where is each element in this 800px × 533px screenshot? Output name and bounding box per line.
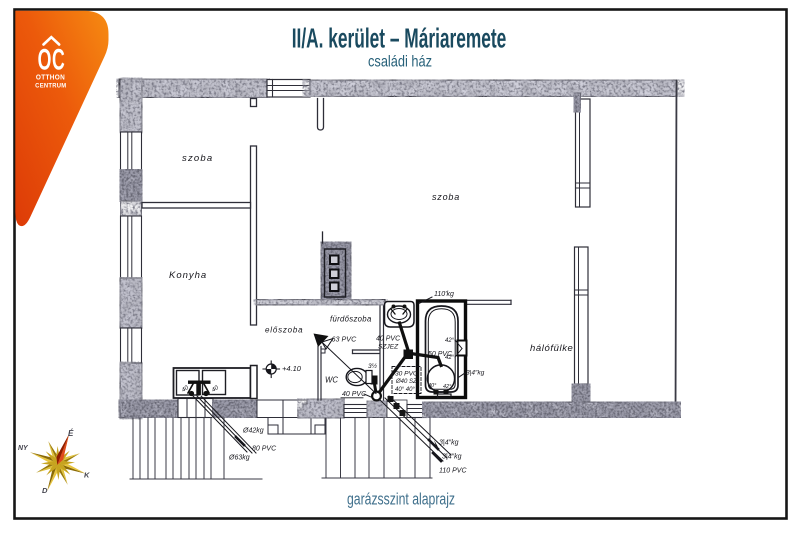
svg-text:fürdőszoba: fürdőszoba	[330, 315, 372, 324]
svg-text:42°: 42°	[445, 355, 455, 361]
svg-text:3½: 3½	[368, 362, 378, 370]
svg-text:WC: WC	[325, 376, 338, 385]
svg-text:NY: NY	[18, 445, 29, 452]
svg-text:3|4″kg: 3|4″kg	[466, 370, 485, 377]
svg-text:+4.10: +4.10	[282, 364, 302, 373]
svg-text:SZJEZ: SZJEZ	[378, 344, 399, 351]
svg-text:42°: 42°	[445, 338, 455, 344]
svg-text:110′kg: 110′kg	[434, 291, 454, 298]
svg-text:40 PVC: 40 PVC	[376, 336, 401, 343]
svg-text:szoba: szoba	[432, 192, 460, 202]
svg-text:40 PVC: 40 PVC	[342, 391, 367, 398]
svg-text:Ø40 SZ: Ø40 SZ	[395, 379, 417, 385]
svg-text:OC: OC	[38, 44, 66, 77]
svg-text:80 PVC: 80 PVC	[252, 446, 277, 453]
svg-text:3|4″kg: 3|4″kg	[442, 454, 462, 461]
svg-text:40°: 40°	[428, 383, 437, 389]
svg-text:szoba: szoba	[182, 153, 213, 164]
svg-text:OTTHON: OTTHON	[36, 74, 65, 81]
svg-text:É: É	[68, 429, 74, 438]
svg-text:Ø63kg: Ø63kg	[228, 455, 250, 462]
svg-text:3|4″kg: 3|4″kg	[439, 440, 459, 447]
svg-text:42°: 42°	[443, 384, 452, 390]
svg-text:30 PVC: 30 PVC	[395, 371, 418, 378]
svg-text:CENTRUM: CENTRUM	[35, 82, 66, 89]
svg-text:40° 40°: 40° 40°	[395, 387, 415, 393]
svg-text:K: K	[84, 471, 90, 480]
svg-text:110 PVC: 110 PVC	[439, 468, 467, 475]
svg-text:garázsszint alaprajz: garázsszint alaprajz	[347, 491, 455, 509]
svg-text:II/A. kerület – Máriaremete: II/A. kerület – Máriaremete	[292, 22, 507, 53]
svg-text:Konyha: Konyha	[169, 270, 207, 281]
svg-text:Ø42kg: Ø42kg	[242, 428, 264, 435]
svg-text:hálófülke: hálófülke	[530, 343, 573, 354]
svg-text:családi ház: családi ház	[368, 53, 432, 71]
svg-text:63 PVC: 63 PVC	[332, 335, 358, 344]
svg-text:D: D	[42, 486, 48, 495]
svg-text:előszoba: előszoba	[265, 326, 303, 335]
